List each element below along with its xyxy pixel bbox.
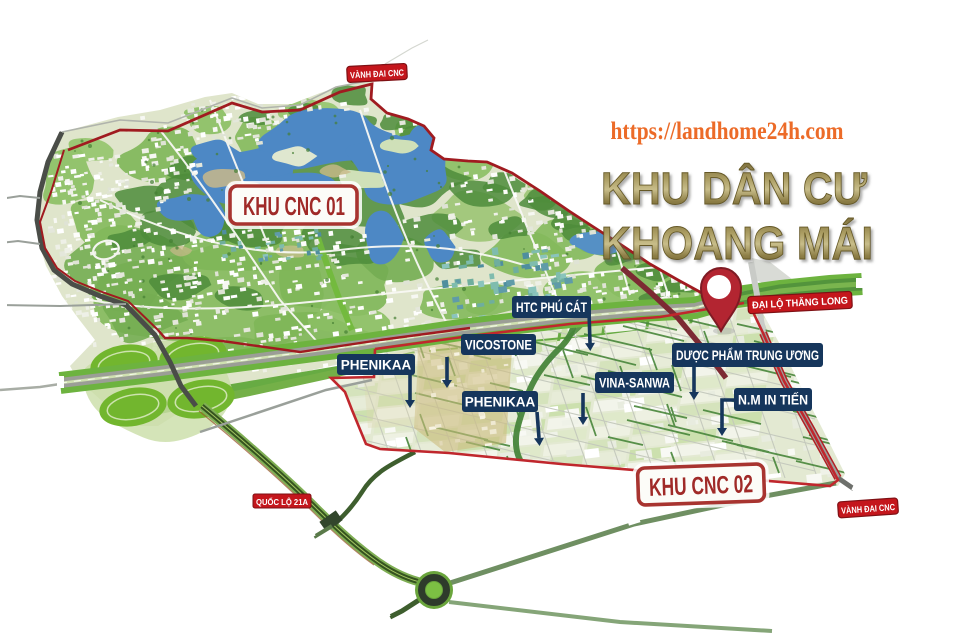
svg-text:N.M IN TIẾN: N.M IN TIẾN — [738, 392, 808, 407]
svg-text:QUỐC LỘ 21A: QUỐC LỘ 21A — [256, 496, 308, 507]
svg-text:KHU CNC 02: KHU CNC 02 — [649, 470, 754, 502]
svg-text:KHU DÂN CƯ: KHU DÂN CƯ — [601, 163, 868, 214]
svg-text:KHU CNC 01: KHU CNC 01 — [243, 191, 345, 221]
svg-text:PHENIKAA: PHENIKAA — [341, 357, 412, 372]
svg-text:VINA-SANWA: VINA-SANWA — [599, 375, 670, 390]
svg-text:KHOANG MÁI: KHOANG MÁI — [601, 217, 873, 269]
svg-text:https://landhome24h.com: https://landhome24h.com — [611, 118, 844, 145]
svg-text:HTC PHÚ CÁT: HTC PHÚ CÁT — [516, 300, 588, 315]
svg-text:DƯỢC PHẨM TRUNG ƯƠNG: DƯỢC PHẨM TRUNG ƯƠNG — [676, 346, 819, 363]
svg-text:PHENIKAA: PHENIKAA — [465, 394, 536, 409]
svg-text:VICOSTONE: VICOSTONE — [465, 337, 532, 352]
